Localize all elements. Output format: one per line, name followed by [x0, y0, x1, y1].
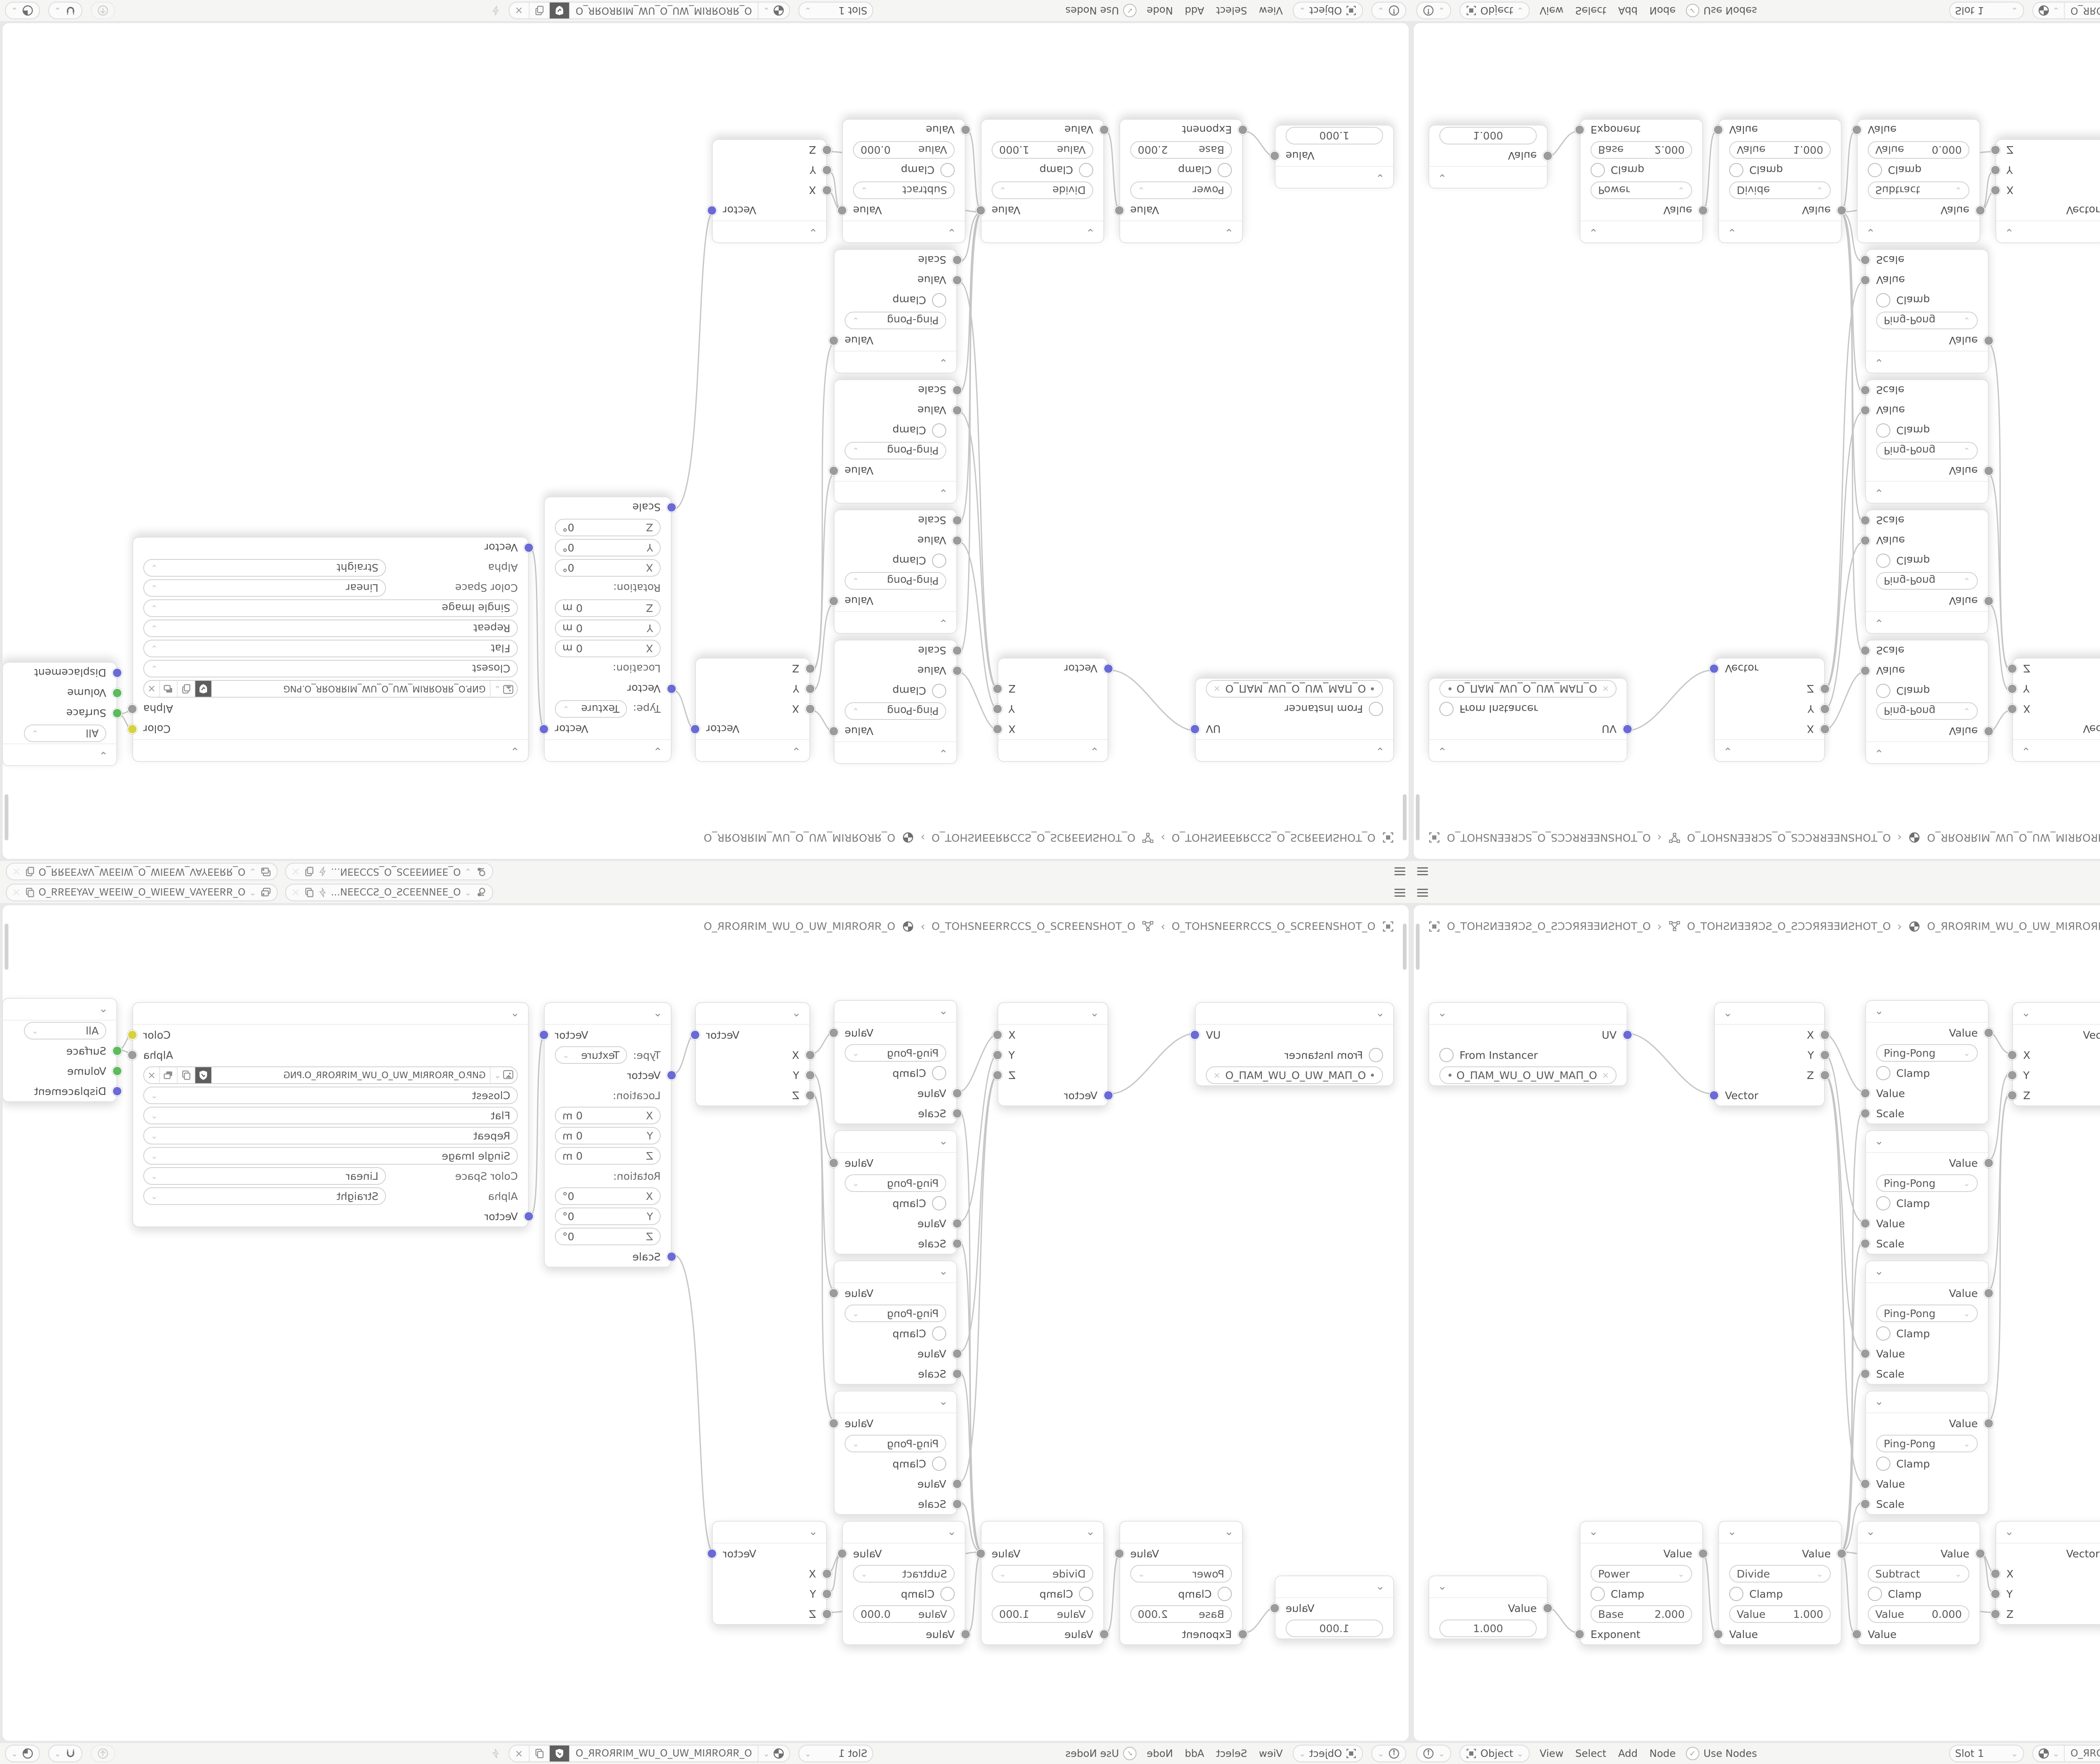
menu-node[interactable]: Node: [1145, 1748, 1175, 1759]
scrollbar-left[interactable]: [1403, 924, 1407, 970]
socket-value-input[interactable]: [1853, 126, 1861, 134]
socket-value-output[interactable]: [829, 1289, 838, 1297]
socket-x-input[interactable]: [2008, 705, 2016, 713]
socket-value-output[interactable]: [829, 336, 838, 345]
chevron-down-icon[interactable]: ⌄: [249, 888, 256, 897]
new-image-icon[interactable]: [177, 1067, 194, 1083]
socket-value-output[interactable]: [1270, 1604, 1279, 1612]
fake-user-shield-icon[interactable]: [194, 1067, 211, 1083]
node-editor-canvas[interactable]: ⌄ UV From Instancer • O_ПAM_WU_O_UW_MAП_…: [1413, 905, 2100, 1741]
math-operation-dropdown[interactable]: Subtract⌄: [1868, 181, 1969, 199]
clamp-checkbox[interactable]: [1218, 163, 1232, 177]
math-operation-dropdown[interactable]: Ping-Pong⌄: [1876, 572, 1978, 590]
node-header[interactable]: ⌄: [1858, 220, 1979, 242]
socket-scale-input[interactable]: [1861, 516, 1869, 525]
socket-x-output[interactable]: [1821, 725, 1829, 733]
socket-vector-output[interactable]: [691, 1031, 699, 1039]
clamp-checkbox[interactable]: [1868, 163, 1882, 177]
node-header[interactable]: ⌄: [545, 739, 671, 761]
collapse-icon[interactable]: ⌄: [939, 1399, 948, 1405]
node-math-pingpong-4[interactable]: ⌄ Value Ping-Pong⌄ Clamp Value Scale: [834, 1391, 957, 1515]
node-math-pingpong-4[interactable]: ⌄ Value Ping-Pong⌄ Clamp Value Scale: [834, 249, 957, 373]
node-header[interactable]: ⌄: [835, 741, 956, 763]
rotation-x-field[interactable]: X0°: [555, 559, 661, 577]
socket-exponent-input[interactable]: [1575, 126, 1584, 134]
editor-type-button[interactable]: ⌄: [1416, 2, 1451, 19]
math-operation-dropdown[interactable]: Ping-Pong⌄: [1876, 702, 1978, 720]
node-combine-xyz-upper[interactable]: ⌄ Vector X Y Z: [695, 658, 810, 762]
socket-value-input[interactable]: [1853, 1630, 1861, 1638]
node-combine-xyz-upper[interactable]: ⌄ Vector X Y Z: [2012, 658, 2100, 762]
slot-dropdown[interactable]: Slot 1⌄: [798, 1745, 873, 1762]
socket-value-output[interactable]: [1984, 336, 1993, 345]
from-instancer-checkbox[interactable]: [1439, 702, 1454, 716]
node-combine-xyz-lower[interactable]: ⌄ Vector X Y Z: [712, 1521, 827, 1625]
node-math-pingpong-2[interactable]: ⌄ Value Ping-Pong⌄ Clamp Value Scale: [1865, 1130, 1989, 1255]
node-header[interactable]: ⌄: [1120, 1522, 1242, 1543]
socket-vector-input[interactable]: [525, 543, 533, 552]
output-target-dropdown[interactable]: All⌄: [24, 1022, 106, 1039]
copy-icon[interactable]: [25, 887, 35, 898]
collapse-icon[interactable]: ⌄: [510, 1010, 520, 1017]
node-header[interactable]: ⌄: [1276, 166, 1393, 188]
socket-value-output[interactable]: [976, 1549, 985, 1558]
node-value[interactable]: ⌄ Value 1.000: [1275, 125, 1394, 189]
socket-value-input[interactable]: [953, 1349, 961, 1358]
socket-scale-input[interactable]: [1861, 1370, 1869, 1378]
editor-type-button[interactable]: ⌄: [1416, 1745, 1451, 1762]
chevron-down-icon[interactable]: ⌄: [465, 867, 472, 876]
projection-dropdown[interactable]: Flat⌄: [143, 1107, 518, 1124]
socket-z-output[interactable]: [1821, 685, 1829, 693]
node-header[interactable]: ⌄: [835, 481, 956, 503]
collapse-icon[interactable]: ⌄: [99, 1006, 108, 1013]
collapse-icon[interactable]: ⌄: [1589, 228, 1598, 235]
collapse-icon[interactable]: ⌄: [2005, 228, 2014, 235]
socket-value-input[interactable]: [1861, 1480, 1869, 1488]
socket-exponent-input[interactable]: [1239, 1630, 1247, 1638]
close-icon[interactable]: ×: [1602, 685, 1609, 693]
close-icon[interactable]: ×: [1213, 685, 1221, 693]
alpha-mode-dropdown[interactable]: Straight⌄: [143, 1187, 386, 1205]
socket-vector-output[interactable]: [708, 206, 716, 215]
close-icon[interactable]: ×: [1213, 1071, 1221, 1079]
collapse-icon[interactable]: ⌄: [1874, 1138, 1884, 1145]
menu-view[interactable]: View: [1538, 5, 1565, 16]
node-header[interactable]: ⌄: [696, 739, 809, 761]
socket-uv-output[interactable]: [1623, 1031, 1632, 1039]
math-operation-dropdown[interactable]: Ping-Pong⌄: [845, 312, 946, 329]
socket-z-output[interactable]: [1821, 1071, 1829, 1079]
node-math-power[interactable]: ⌄ Value Power⌄ Clamp Base2.000 Exponent: [1580, 119, 1703, 243]
socket-value-output[interactable]: [838, 206, 846, 215]
node-math-divide[interactable]: ⌄ Value Divide⌄ Clamp Value1.000 Value: [981, 119, 1104, 243]
clamp-checkbox[interactable]: [1876, 1457, 1890, 1471]
node-header[interactable]: ⌄: [1866, 351, 1988, 373]
socket-scale-input[interactable]: [953, 1370, 961, 1378]
rotation-y-field[interactable]: Y0°: [555, 1207, 661, 1225]
collapse-icon[interactable]: ⌄: [947, 1529, 956, 1536]
node-header[interactable]: ⌄: [1196, 1003, 1393, 1025]
node-header[interactable]: ⌄: [1866, 611, 1988, 633]
math-operation-dropdown[interactable]: Ping-Pong⌄: [845, 1435, 946, 1452]
socket-value-input[interactable]: [1861, 276, 1869, 284]
hamburger-menu-icon[interactable]: [1417, 887, 1430, 899]
fake-user-shield-icon[interactable]: [194, 681, 211, 697]
collapse-icon[interactable]: ⌄: [1438, 1010, 1447, 1017]
breadcrumb-material[interactable]: O_ЯROЯRIM_WU_O_UW_MIЯROЯR_O: [1927, 920, 2100, 932]
collapse-icon[interactable]: ⌄: [510, 747, 520, 754]
view-layer-name[interactable]: O_ЯЯƎƎYAV_WƎƎIW_O_WIƎƎW_VAYƎƎЯЯ_O: [39, 887, 246, 898]
math-operation-dropdown[interactable]: Divide⌄: [1729, 181, 1831, 199]
socket-scale-input[interactable]: [1861, 386, 1869, 394]
slot-dropdown[interactable]: Slot 1⌄: [798, 2, 873, 19]
collapse-icon[interactable]: ⌄: [1438, 1583, 1447, 1590]
menu-select[interactable]: Select: [1574, 5, 1608, 16]
close-icon[interactable]: ×: [12, 866, 21, 877]
socket-x-input[interactable]: [1991, 1570, 2000, 1578]
from-instancer-checkbox[interactable]: [1369, 702, 1383, 716]
collapse-icon[interactable]: ⌄: [939, 1268, 948, 1275]
node-separate-xyz[interactable]: ⌄ X Y Z Vector: [1714, 1002, 1825, 1106]
socket-value-output[interactable]: [976, 206, 985, 215]
collapse-icon[interactable]: ⌄: [1874, 1008, 1884, 1015]
copy-icon[interactable]: [304, 866, 314, 877]
use-nodes-checkbox[interactable]: ✓ Use Nodes: [1686, 1747, 1757, 1760]
socket-value-input[interactable]: [1100, 1630, 1108, 1638]
collapse-icon[interactable]: ⌄: [1874, 749, 1884, 756]
node-math-pingpong-2[interactable]: ⌄ Value Ping-Pong⌄ Clamp Value Scale: [1865, 509, 1989, 634]
shader-type-dropdown[interactable]: Object ⌄: [1293, 2, 1363, 19]
node-combine-xyz-upper[interactable]: ⌄ Vector X Y Z: [2012, 1002, 2100, 1106]
collapse-icon[interactable]: ⌄: [653, 747, 662, 754]
copy-icon[interactable]: [304, 887, 314, 898]
interpolation-dropdown[interactable]: Closest⌄: [143, 660, 518, 677]
socket-y-input[interactable]: [806, 685, 814, 693]
collapse-icon[interactable]: ⌄: [792, 747, 801, 754]
node-uv-map[interactable]: ⌄ UV From Instancer • O_ПAM_WU_O_UW_MAП_…: [1195, 1002, 1394, 1086]
slot-dropdown[interactable]: Slot 1⌄: [1949, 1745, 2024, 1762]
socket-value-output[interactable]: [1984, 727, 1993, 735]
clamp-checkbox[interactable]: [1591, 163, 1605, 177]
material-sphere-icon[interactable]: ⌄: [759, 1746, 789, 1761]
open-image-icon[interactable]: [159, 681, 177, 697]
node-math-pingpong-2[interactable]: ⌄ Value Ping-Pong⌄ Clamp Value Scale: [834, 1130, 957, 1255]
collapse-icon[interactable]: ⌄: [1874, 619, 1884, 626]
mapping-type-dropdown[interactable]: Texture⌄: [555, 700, 627, 718]
socket-y-output[interactable]: [1821, 705, 1829, 713]
socket-scale-input[interactable]: [953, 386, 961, 394]
node-combine-xyz-lower[interactable]: ⌄ Vector X Y Z: [712, 139, 827, 243]
node-header[interactable]: ⌄: [2013, 1003, 2100, 1025]
socket-value-output[interactable]: [1984, 1289, 1993, 1297]
math-operation-dropdown[interactable]: Ping-Pong⌄: [1876, 1435, 1978, 1452]
collapse-icon[interactable]: ⌄: [1874, 489, 1884, 496]
math-operation-dropdown[interactable]: Divide⌄: [992, 1565, 1093, 1583]
socket-value-output[interactable]: [1115, 1549, 1123, 1558]
socket-value-input[interactable]: [953, 1219, 961, 1228]
close-icon[interactable]: ×: [1602, 1071, 1609, 1079]
menu-add[interactable]: Add: [1617, 1748, 1639, 1759]
collapse-icon[interactable]: ⌄: [939, 1008, 948, 1015]
node-math-power[interactable]: ⌄ Value Power⌄ Clamp Base2.000 Exponent: [1119, 119, 1243, 243]
node-mapping[interactable]: ⌄ Vector Type:Texture⌄ Vector Location: …: [544, 496, 672, 762]
collapse-icon[interactable]: ⌄: [939, 359, 948, 365]
clamp-checkbox[interactable]: [1079, 163, 1093, 177]
socket-volume-input[interactable]: [113, 1067, 121, 1075]
material-name[interactable]: O_ЯROЯRIM_WU_O_UW_MIЯROЯR_O: [569, 1746, 759, 1761]
collapse-icon[interactable]: ⌄: [1375, 1583, 1385, 1590]
math-operation-dropdown[interactable]: Ping-Pong⌄: [1876, 312, 1978, 329]
socket-scale-input[interactable]: [667, 1252, 676, 1261]
socket-value-output[interactable]: [1984, 1159, 1993, 1167]
collapse-icon[interactable]: ⌄: [2021, 747, 2031, 754]
menu-select[interactable]: Select: [1214, 1748, 1249, 1759]
base-field[interactable]: Base2.000: [1591, 141, 1692, 159]
menu-node[interactable]: Node: [1648, 5, 1677, 16]
collapse-icon[interactable]: ⌄: [1086, 228, 1095, 235]
clamp-checkbox[interactable]: [1876, 423, 1890, 438]
collapse-icon[interactable]: ⌄: [1866, 228, 1875, 235]
socket-z-input[interactable]: [1991, 1610, 2000, 1618]
use-nodes-checkbox[interactable]: ✓ Use Nodes: [1686, 4, 1757, 17]
rotation-y-field[interactable]: Y0°: [555, 539, 661, 556]
socket-value-input[interactable]: [1861, 406, 1869, 415]
socket-value-output[interactable]: [1543, 1604, 1552, 1612]
socket-z-input[interactable]: [806, 664, 814, 673]
node-header[interactable]: ⌄: [1196, 739, 1393, 761]
hamburger-menu-icon[interactable]: [1393, 887, 1405, 899]
node-header[interactable]: ⌄: [3, 999, 116, 1021]
socket-x-input[interactable]: [806, 705, 814, 713]
math-operation-dropdown[interactable]: Power⌄: [1130, 181, 1232, 199]
socket-value-input[interactable]: [1714, 126, 1722, 134]
menu-add[interactable]: Add: [1183, 1748, 1206, 1759]
socket-scale-input[interactable]: [1861, 1500, 1869, 1508]
collapse-icon[interactable]: ⌄: [1723, 747, 1732, 754]
socket-y-output[interactable]: [993, 705, 1002, 713]
location-y-field[interactable]: Y0 m: [555, 619, 661, 637]
socket-value-output[interactable]: [1984, 1029, 1993, 1037]
rotation-x-field[interactable]: X0°: [555, 1187, 661, 1205]
node-header[interactable]: ⌄: [998, 739, 1108, 761]
socket-value-output[interactable]: [829, 1159, 838, 1167]
socket-uv-output[interactable]: [1191, 725, 1199, 733]
base-field[interactable]: Base2.000: [1130, 1605, 1232, 1623]
socket-value-input[interactable]: [953, 1480, 961, 1488]
socket-y-input[interactable]: [806, 1071, 814, 1079]
alpha-mode-dropdown[interactable]: Straight⌄: [143, 559, 386, 577]
clamp-checkbox[interactable]: [1079, 1587, 1093, 1601]
node-math-subtract[interactable]: ⌄ Value Subtract⌄ Clamp Value0.000 Value: [1857, 119, 1980, 243]
collapse-icon[interactable]: ⌄: [1866, 1529, 1875, 1536]
node-uv-map[interactable]: ⌄ UV From Instancer • O_ПAM_WU_O_UW_MAП_…: [1428, 678, 1627, 762]
node-uv-map[interactable]: ⌄ UV From Instancer • O_ПAM_WU_O_UW_MAП_…: [1428, 1002, 1627, 1086]
socket-scale-input[interactable]: [953, 1109, 961, 1118]
node-header[interactable]: ⌄: [998, 1003, 1108, 1025]
node-header[interactable]: ⌄: [835, 351, 956, 373]
material-name[interactable]: O_ЯROЯRIM_WU_O_UW_MIЯROЯR_O: [2064, 3, 2100, 18]
editor-type-button[interactable]: ⌄: [1371, 2, 1406, 19]
node-header[interactable]: ⌄: [3, 743, 116, 765]
clamp-checkbox[interactable]: [932, 423, 946, 438]
node-math-power[interactable]: ⌄ Value Power⌄ Clamp Base2.000 Exponent: [1119, 1521, 1243, 1645]
clamp-checkbox[interactable]: [932, 1066, 946, 1080]
copy-material-icon[interactable]: [529, 3, 549, 18]
clamp-checkbox[interactable]: [1876, 684, 1890, 698]
socket-value-input[interactable]: [953, 667, 961, 675]
use-nodes-checkbox[interactable]: ✓ Use Nodes: [1066, 1747, 1137, 1760]
socket-y-input[interactable]: [2008, 1071, 2016, 1079]
node-math-divide[interactable]: ⌄ Value Divide⌄ Clamp Value1.000 Value: [981, 1521, 1104, 1645]
shader-type-dropdown[interactable]: Object ⌄: [1293, 1745, 1363, 1762]
node-math-pingpong-3[interactable]: ⌄ Value Ping-Pong⌄ Clamp Value Scale: [1865, 1260, 1989, 1385]
source-dropdown[interactable]: Single Image⌄: [143, 1147, 518, 1165]
hamburger-menu-icon[interactable]: [1417, 866, 1430, 878]
node-header[interactable]: ⌄: [1120, 220, 1242, 242]
clamp-checkbox[interactable]: [1876, 554, 1890, 568]
image-filename[interactable]: GИP.O_ЯROЯRIM_WU_O_UW_MIЯROЯR_O.PNG: [211, 1067, 490, 1083]
node-math-pingpong-3[interactable]: ⌄ Value Ping-Pong⌄ Clamp Value Scale: [834, 379, 957, 504]
node-value[interactable]: ⌄ Value 1.000: [1428, 1575, 1548, 1639]
socket-value-input[interactable]: [1100, 126, 1108, 134]
socket-value-output[interactable]: [1699, 206, 1707, 215]
clamp-checkbox[interactable]: [932, 1196, 946, 1210]
node-header[interactable]: ⌄: [982, 1522, 1103, 1543]
fake-user-shield-icon[interactable]: [549, 1746, 569, 1761]
close-icon[interactable]: ×: [12, 887, 21, 898]
clamp-checkbox[interactable]: [1868, 1587, 1882, 1601]
collapse-icon[interactable]: ⌄: [1375, 174, 1385, 181]
snap-button[interactable]: ⌄: [48, 2, 82, 19]
socket-x-input[interactable]: [823, 186, 831, 194]
collapse-icon[interactable]: ⌄: [1727, 228, 1737, 235]
socket-value-output[interactable]: [1115, 206, 1123, 215]
socket-y-input[interactable]: [823, 166, 831, 174]
breadcrumb-material[interactable]: O_ЯROЯRIM_WU_O_UW_MIЯROЯR_O: [703, 832, 895, 844]
node-separate-xyz[interactable]: ⌄ X Y Z Vector: [997, 658, 1108, 762]
socket-vector-input[interactable]: [1104, 1091, 1113, 1100]
node-header[interactable]: ⌄: [1719, 1522, 1841, 1543]
node-header[interactable]: ⌄: [545, 1003, 671, 1025]
scene-selector[interactable]: ⌄ O_ƎƎИИƎƎƆS_O_SƆƆƎƎИ... ×: [285, 884, 493, 901]
math-operation-dropdown[interactable]: Ping-Pong⌄: [1876, 1305, 1978, 1322]
socket-displacement-input[interactable]: [113, 1087, 121, 1095]
image-icon[interactable]: ⌄: [490, 681, 517, 697]
clamp-checkbox[interactable]: [940, 1587, 955, 1601]
copy-material-icon[interactable]: [529, 1746, 549, 1761]
breadcrumb-scene[interactable]: O_TOHƧИƎƎЯƆƧ_O_ƧƆƆЯЯƎƎИƧHOT_O: [1447, 832, 1651, 844]
copy-icon[interactable]: [25, 866, 35, 877]
socket-scale-input[interactable]: [1861, 256, 1869, 264]
socket-value-input[interactable]: [1861, 536, 1869, 545]
math-operation-dropdown[interactable]: Ping-Pong⌄: [1876, 1174, 1978, 1192]
shader-type-dropdown[interactable]: Object ⌄: [1459, 1745, 1530, 1762]
socket-vector-output[interactable]: [540, 1031, 548, 1039]
socket-scale-input[interactable]: [1861, 1239, 1869, 1248]
socket-value-output[interactable]: [829, 727, 838, 735]
view-layer-selector[interactable]: ⌄ O_ЯЯƎƎYAV_WƎƎIW_O_WIƎƎW_VAYƎƎЯЯ_O ×: [6, 884, 278, 901]
socket-value-input[interactable]: [953, 1089, 961, 1097]
new-image-icon[interactable]: [177, 681, 194, 697]
math-operation-dropdown[interactable]: Ping-Pong⌄: [845, 1305, 946, 1322]
node-header[interactable]: ⌄: [713, 220, 826, 242]
material-name[interactable]: O_ЯROЯRIM_WU_O_UW_MIЯROЯR_O: [2064, 1746, 2100, 1761]
node-header[interactable]: ⌄: [1719, 220, 1841, 242]
node-math-pingpong-3[interactable]: ⌄ Value Ping-Pong⌄ Clamp Value Scale: [1865, 379, 1989, 504]
node-mapping[interactable]: ⌄ Vector Type:Texture⌄ Vector Location: …: [544, 1002, 672, 1268]
value-field[interactable]: Value1.000: [1729, 141, 1831, 159]
math-operation-dropdown[interactable]: Subtract⌄: [1868, 1565, 1969, 1583]
open-image-icon[interactable]: [159, 1067, 177, 1083]
proportional-edit-button[interactable]: [91, 1745, 115, 1762]
collapse-icon[interactable]: ⌄: [1727, 1529, 1737, 1536]
math-operation-dropdown[interactable]: Ping-Pong⌄: [845, 1044, 946, 1062]
node-uv-map[interactable]: ⌄ UV From Instancer • O_ПAM_WU_O_UW_MAП_…: [1195, 678, 1394, 762]
value-field[interactable]: Value0.000: [1868, 1605, 1969, 1623]
node-editor-canvas[interactable]: ⌄ UV From Instancer • O_ПAM_WU_O_UW_MAП_…: [1413, 23, 2100, 859]
node-header[interactable]: ⌄: [133, 739, 528, 761]
image-icon[interactable]: ⌄: [490, 1067, 517, 1083]
node-math-subtract[interactable]: ⌄ Value Subtract⌄ Clamp Value0.000 Value: [1857, 1521, 1980, 1645]
socket-scale-input[interactable]: [953, 256, 961, 264]
collapse-icon[interactable]: ⌄: [2021, 1010, 2031, 1017]
node-header[interactable]: ⌄: [982, 220, 1103, 242]
proportional-edit-button[interactable]: [91, 2, 115, 19]
collapse-icon[interactable]: ⌄: [1090, 747, 1099, 754]
extension-dropdown[interactable]: Repeat⌄: [143, 619, 518, 637]
node-math-subtract[interactable]: ⌄ Value Subtract⌄ Clamp Value0.000 Value: [842, 1521, 966, 1645]
socket-value-output[interactable]: [829, 597, 838, 605]
socket-scale-input[interactable]: [953, 516, 961, 525]
breadcrumb-material[interactable]: O_ЯROЯRIM_WU_O_UW_MIЯROЯR_O: [703, 920, 895, 932]
overlays-button[interactable]: ⌄: [5, 2, 40, 19]
socket-value-input[interactable]: [1861, 1089, 1869, 1097]
uv-map-dropdown[interactable]: • O_ПAM_WU_O_UW_MAП_O×: [1439, 680, 1617, 698]
socket-z-output[interactable]: [993, 1071, 1002, 1079]
scrollbar-left[interactable]: [1416, 794, 1420, 840]
socket-z-input[interactable]: [806, 1091, 814, 1100]
menu-view[interactable]: View: [1538, 1748, 1565, 1759]
material-selector[interactable]: ⌄ O_ЯROЯRIM_WU_O_UW_MIЯROЯR_O ×: [509, 2, 790, 19]
clamp-checkbox[interactable]: [1591, 1587, 1605, 1601]
socket-x-input[interactable]: [823, 1570, 831, 1578]
socket-value-input[interactable]: [953, 536, 961, 545]
collapse-icon[interactable]: ⌄: [947, 228, 956, 235]
collapse-icon[interactable]: ⌄: [1224, 1529, 1234, 1536]
math-operation-dropdown[interactable]: Subtract⌄: [853, 181, 955, 199]
socket-z-input[interactable]: [2008, 1091, 2016, 1100]
socket-color-output[interactable]: [128, 1031, 136, 1039]
close-icon[interactable]: ×: [291, 866, 300, 877]
math-operation-dropdown[interactable]: Ping-Pong⌄: [845, 572, 946, 590]
overlays-button[interactable]: ⌄: [5, 1745, 40, 1762]
value-field[interactable]: 1.000: [1439, 127, 1537, 144]
collapse-icon[interactable]: ⌄: [939, 619, 948, 626]
socket-value-output[interactable]: [1976, 1549, 1984, 1558]
node-separate-xyz[interactable]: ⌄ X Y Z Vector: [997, 1002, 1108, 1106]
node-header[interactable]: ⌄: [1429, 739, 1627, 761]
collapse-icon[interactable]: ⌄: [2005, 1529, 2014, 1536]
breadcrumb-scene[interactable]: O_TOHƧИƎƎЯƆƧ_O_ƧƆƆЯЯƎƎИƧHOT_O: [1447, 920, 1651, 932]
from-instancer-checkbox[interactable]: [1439, 1048, 1454, 1062]
socket-value-output[interactable]: [1543, 152, 1552, 160]
scrollbar-right[interactable]: [5, 924, 8, 970]
socket-x-output[interactable]: [993, 1031, 1002, 1039]
node-math-pingpong-3[interactable]: ⌄ Value Ping-Pong⌄ Clamp Value Scale: [834, 1260, 957, 1385]
socket-value-output[interactable]: [1976, 206, 1984, 215]
node-header[interactable]: ⌄: [1996, 220, 2100, 242]
